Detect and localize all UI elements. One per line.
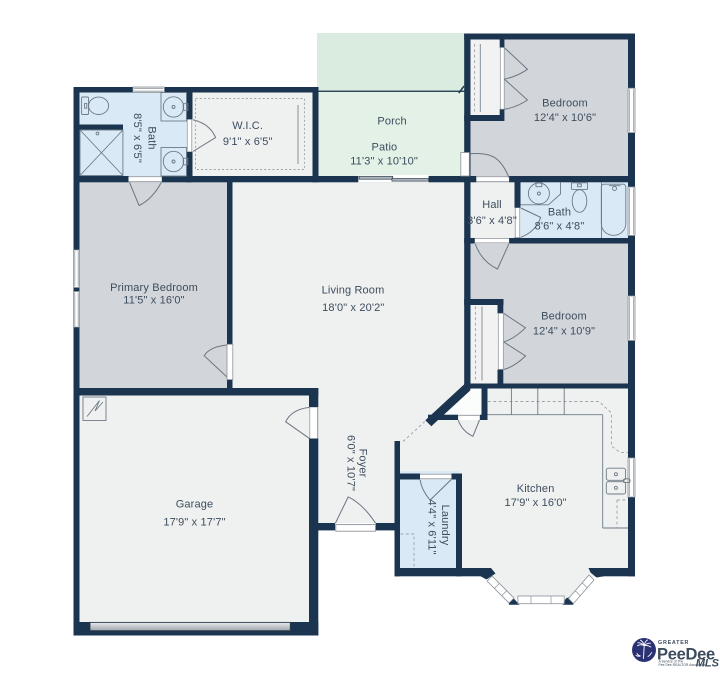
svg-text:Bedroom: Bedroom [542,98,588,110]
svg-text:17'9" x 16'0": 17'9" x 16'0" [504,497,566,509]
svg-text:8'6" x 4'8": 8'6" x 4'8" [535,221,585,233]
svg-text:17'9" x 17'7": 17'9" x 17'7" [163,517,225,529]
svg-text:18'0" x 20'2": 18'0" x 20'2" [322,302,384,314]
svg-text:3'6" x 4'8": 3'6" x 4'8" [467,215,517,227]
svg-text:Garage: Garage [176,499,214,511]
svg-text:11'5" x 16'0": 11'5" x 16'0" [123,295,184,307]
svg-text:4'4" x 6'11": 4'4" x 6'11" [426,499,438,554]
svg-text:8'5" x 6'5": 8'5" x 6'5" [131,113,143,163]
svg-text:Patio: Patio [371,142,397,154]
svg-text:Kitchen: Kitchen [517,483,555,495]
svg-text:Laundry: Laundry [439,505,451,546]
svg-text:Bedroom: Bedroom [541,311,587,323]
svg-text:Living Room: Living Room [322,285,385,297]
svg-text:6'0" x 10'7": 6'0" x 10'7" [345,435,357,491]
svg-text:Primary Bedroom: Primary Bedroom [110,282,198,294]
svg-text:W.I.C.: W.I.C. [232,120,263,132]
svg-text:9'1" x 6'5": 9'1" x 6'5" [223,136,273,148]
svg-text:Pee Dee REALTOR Association: Pee Dee REALTOR Association [659,663,707,667]
svg-text:12'4" x 10'9": 12'4" x 10'9" [533,325,595,337]
svg-text:Porch: Porch [377,115,407,127]
svg-text:Foyer: Foyer [357,449,369,478]
svg-text:11'3" x 10'10": 11'3" x 10'10" [350,155,418,167]
svg-text:Hall: Hall [482,199,502,211]
svg-text:12'4" x 10'6": 12'4" x 10'6" [534,112,596,124]
svg-text:Bath: Bath [548,207,571,219]
svg-text:Bath: Bath [146,126,158,149]
